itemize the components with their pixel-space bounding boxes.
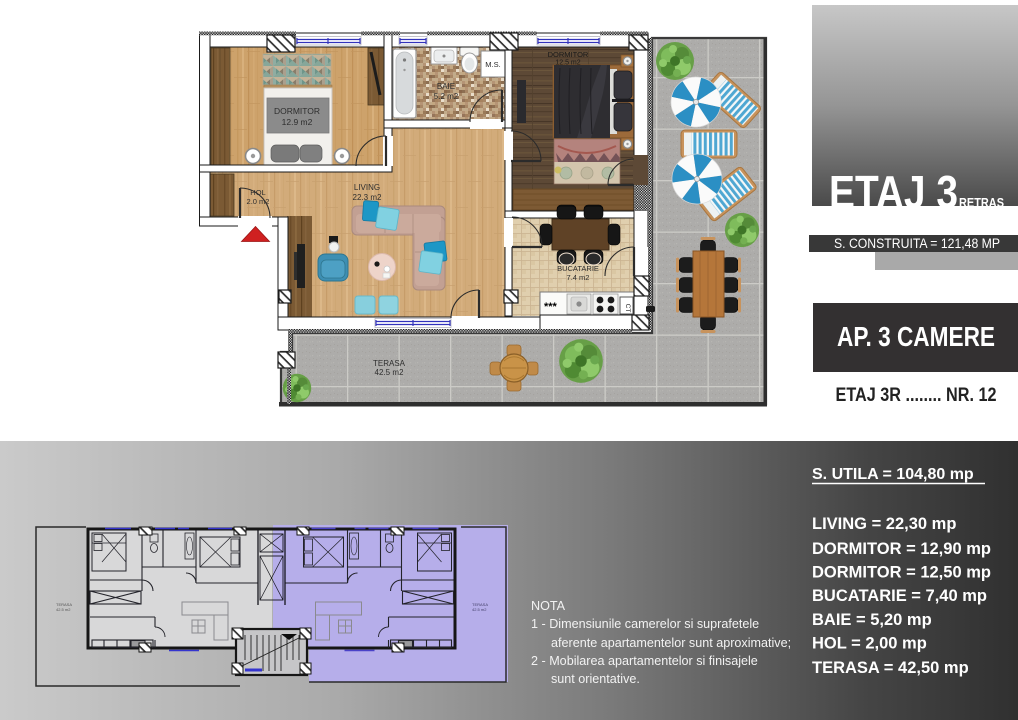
svg-text:7.4 m2: 7.4 m2 [567, 273, 590, 282]
svg-text:BUCATARIE: BUCATARIE [557, 264, 599, 273]
svg-text:S. CONSTRUITA = 121,48 MP: S. CONSTRUITA = 121,48 MP [834, 236, 1000, 251]
svg-text:DORMITOR: DORMITOR [274, 106, 320, 116]
svg-text:ETAJ 3R ........ NR. 12: ETAJ 3R ........ NR. 12 [836, 385, 997, 406]
svg-text:LIVING = 22,30 mp: LIVING = 22,30 mp [812, 515, 956, 533]
svg-text:12.5 m2: 12.5 m2 [555, 60, 580, 67]
svg-text:NOTA: NOTA [531, 599, 566, 613]
svg-text:TERASA = 42,50 mp: TERASA = 42,50 mp [812, 659, 969, 677]
svg-text:42.5 m2: 42.5 m2 [472, 607, 487, 612]
svg-text:BAIE = 5,20 mp: BAIE = 5,20 mp [812, 611, 932, 629]
svg-text:2.0 m2: 2.0 m2 [247, 197, 270, 206]
svg-text:AP. 3 CAMERE: AP. 3 CAMERE [837, 321, 995, 352]
svg-text:1 - Dimensiunile camerelor si: 1 - Dimensiunile camerelor si suprafetel… [531, 617, 759, 631]
svg-text:LIVING: LIVING [354, 183, 380, 192]
svg-text:42.5 m2: 42.5 m2 [375, 368, 404, 377]
svg-text:HOL = 2,00 mp: HOL = 2,00 mp [812, 635, 927, 653]
svg-text:CT: CT [624, 304, 631, 313]
svg-text:DORMITOR: DORMITOR [548, 50, 589, 59]
svg-text:HOL: HOL [250, 188, 265, 197]
svg-text:DORMITOR = 12,50 mp: DORMITOR = 12,50 mp [812, 564, 991, 582]
svg-text:S. UTILA = 104,80 mp: S. UTILA = 104,80 mp [812, 466, 974, 483]
svg-text:M.S.: M.S. [485, 60, 500, 69]
svg-text:***: *** [544, 301, 558, 313]
svg-text:2 - Mobilarea apartamentelor s: 2 - Mobilarea apartamentelor si finisaje… [531, 654, 758, 668]
svg-text:5.2 m2: 5.2 m2 [434, 92, 459, 101]
svg-text:RETRAS: RETRAS [959, 196, 1004, 210]
svg-text:DORMITOR = 12,90 mp: DORMITOR = 12,90 mp [812, 540, 991, 558]
svg-text:BAIE: BAIE [437, 82, 455, 91]
svg-text:12.9 m2: 12.9 m2 [282, 117, 313, 127]
svg-text:BUCATARIE = 7,40 mp: BUCATARIE = 7,40 mp [812, 587, 987, 605]
svg-text:42.5 m2: 42.5 m2 [56, 607, 71, 612]
svg-text:TERASA: TERASA [373, 359, 406, 368]
svg-text:ETAJ 3: ETAJ 3 [829, 166, 958, 218]
svg-text:sunt orientative.: sunt orientative. [551, 672, 640, 686]
svg-text:aferente apartamentelor sunt a: aferente apartamentelor sunt aproximativ… [551, 636, 791, 650]
svg-text:22.3 m2: 22.3 m2 [353, 193, 382, 202]
